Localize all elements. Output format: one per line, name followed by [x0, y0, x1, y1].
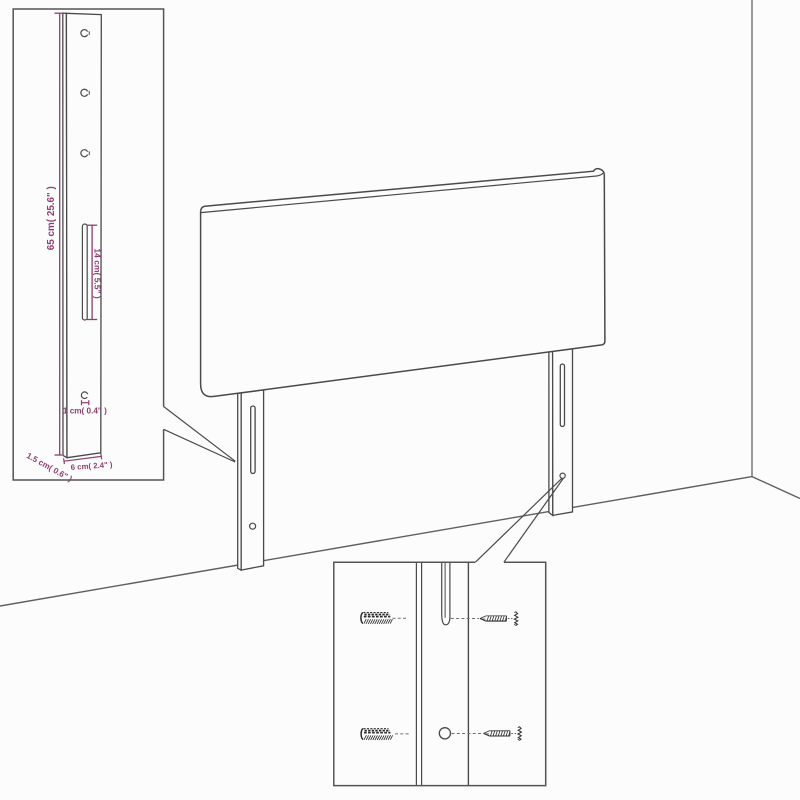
svg-text:14 cm( 5.5" ): 14 cm( 5.5" ) [93, 248, 103, 299]
svg-text:65 cm( 25.6" ): 65 cm( 25.6" ) [46, 186, 57, 250]
svg-text:1 cm( 0.4" ): 1 cm( 0.4" ) [63, 407, 107, 416]
